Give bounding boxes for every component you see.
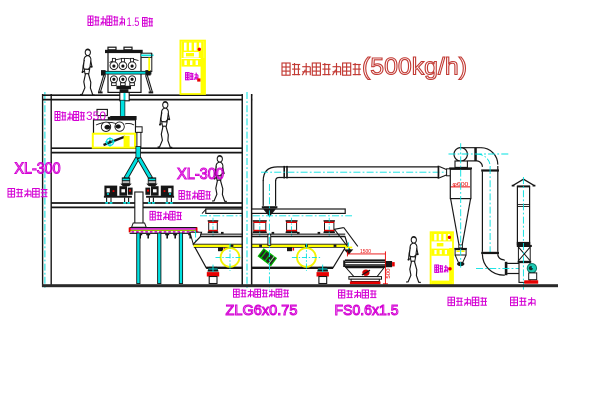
svg-text:XL-300: XL-300 bbox=[15, 160, 61, 177]
svg-text:XL-300: XL-300 bbox=[177, 166, 224, 183]
svg-text:1.5: 1.5 bbox=[127, 15, 140, 29]
svg-text:(500kg/h): (500kg/h) bbox=[362, 54, 467, 81]
svg-text:350: 350 bbox=[86, 111, 106, 123]
svg-text:500: 500 bbox=[386, 268, 392, 278]
svg-text:ZLG6x0.75: ZLG6x0.75 bbox=[226, 302, 298, 319]
svg-text:FS0.6x1.5: FS0.6x1.5 bbox=[335, 302, 399, 319]
svg-text:1500: 1500 bbox=[360, 249, 371, 255]
